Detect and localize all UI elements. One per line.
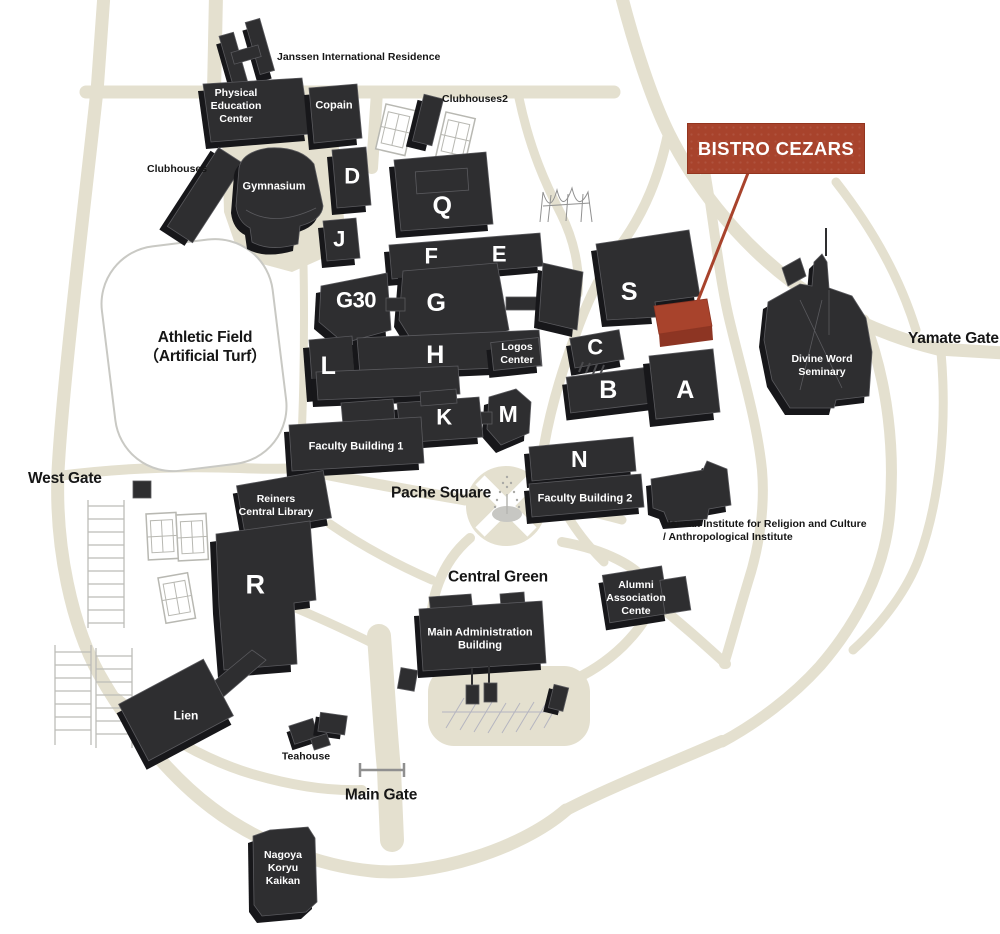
label-e: E (492, 242, 506, 269)
label-q: Q (433, 191, 452, 222)
label-faculty-building-1: Faculty Building 1 (309, 440, 404, 453)
label-g: G (427, 288, 446, 319)
bistro-cezars-banner: BISTRO CEZARS (687, 123, 865, 174)
label-athletic-field: Athletic Field （Artificial Turf） (144, 329, 267, 367)
label-d: D (344, 164, 359, 191)
label-a: A (676, 375, 694, 406)
label-teahouse: Teahouse (282, 751, 330, 764)
label-m: M (499, 400, 518, 428)
label-nagoya-koryu-kaikan: Nagoya Koryu Kaikan (264, 849, 302, 887)
building-copain (304, 84, 362, 150)
label-b: B (599, 375, 617, 406)
label-n: N (571, 445, 587, 473)
label-c: C (587, 335, 602, 362)
label-clubhouses2: Clubhouses2 (442, 93, 508, 106)
label-r: R (246, 569, 265, 602)
building-divine-word-seminary (759, 228, 872, 415)
label-main-administration-building: Main Administration Building (427, 627, 532, 654)
label-k: K (436, 405, 451, 432)
label-g30: G30 (336, 288, 376, 315)
label-yamate-gate: Yamate Gate (908, 330, 999, 349)
label-l: L (321, 351, 336, 382)
label-alumni-association-center: Alumni Association Cente (606, 579, 666, 617)
label-reiners-central-library: Reiners Central Library (239, 493, 314, 519)
label-janssen: Janssen International Residence (277, 51, 440, 64)
label-divine-word-seminary: Divine Word Seminary (791, 353, 852, 379)
label-main-gate: Main Gate (345, 787, 417, 806)
label-pache-square: Pache Square (391, 485, 491, 504)
label-lien: Lien (174, 709, 199, 724)
label-west-gate: West Gate (28, 470, 102, 489)
campus-map: BISTRO CEZARS Janssen International Resi… (0, 0, 1000, 934)
building-bistro-cezars (654, 299, 713, 347)
label-nanzan-institute: Nanzan Institute for Religion and Cultur… (663, 518, 867, 544)
building-west-gate-hut (133, 481, 151, 498)
label-clubhouses: Clubhouses (147, 163, 207, 176)
label-gymnasium: Gymnasium (243, 180, 306, 193)
label-logos-center: Logos Center (500, 341, 533, 367)
label-s: S (621, 277, 637, 308)
label-j: J (333, 227, 345, 254)
label-faculty-building-2: Faculty Building 2 (538, 492, 633, 505)
bistro-cezars-label: BISTRO CEZARS (698, 138, 854, 160)
label-f: F (425, 244, 438, 271)
label-copain: Copain (315, 99, 352, 112)
label-central-green: Central Green (448, 569, 548, 588)
building-teahouse (285, 712, 347, 750)
label-physical-education-center: Physical Education Center (211, 87, 262, 125)
label-h: H (426, 340, 444, 371)
